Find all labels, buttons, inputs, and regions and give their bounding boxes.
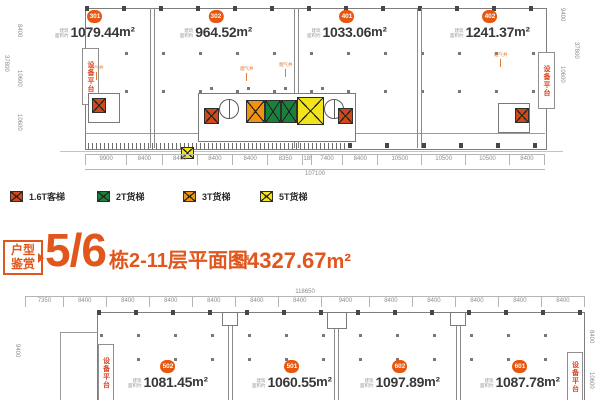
unit-area-value: 1079.44 [71,25,120,39]
unit-label: 301 建筑面积约 1079.44m² [55,10,135,39]
legend-label: 3T货梯 [202,190,231,203]
elevator-2t-freight-icon [281,100,297,123]
elevator-2t-legend-icon [97,191,110,202]
equipment-platform-left: 设备平台 [98,344,114,400]
unit-label: 602 建筑面积约 1097.89m² [360,360,440,389]
unit-number-badge: 602 [393,360,408,373]
unit-area-value: 1033.06 [323,25,372,39]
smoke-shaft-callout: 烟气井 [494,53,508,67]
dimension-left-bottom: 10600 [16,114,22,131]
smoke-shaft-callout: 烟气井 [240,67,254,81]
dimension-segment: 9400 [321,296,369,307]
unit-number-badge: 301 [88,10,103,23]
dimension-left-top: 9400 [14,344,20,357]
smoke-shaft-label: 烟气井 [240,67,254,72]
area-prefix: 建筑面积约 [450,28,464,38]
dimension-segment: 8350 [267,154,302,165]
bottom-plan-shaft [222,312,238,326]
dimension-right-mid: 10600 [559,66,565,83]
stairwell-left-icon [219,99,239,119]
area-prefix: 建筑面积约 [180,28,194,38]
top-plan-unit-divider-3 [417,8,422,148]
dimension-right-top: 9400 [559,8,565,21]
dimension-segment: 8400 [412,296,455,307]
top-plan-column-grid-1 [88,52,542,55]
smoke-shaft-callout: 烟气井 [90,66,104,80]
dimension-total: 118650 [25,288,585,295]
building-number: 5/6 [45,227,106,273]
unit-number-badge: 501 [285,360,300,373]
smoke-shaft-label: 烟气井 [90,66,104,71]
elevator-5t-freight-icon [297,97,324,125]
dimension-segment: 8400 [509,154,545,165]
elevator-3t-freight-icon [246,100,265,123]
dimension-segment: 8400 [232,154,267,165]
dimension-segment: 8400 [498,296,541,307]
equipment-platform-label: 设备平台 [543,65,550,97]
elevator-1.6t-passenger-icon [515,108,529,123]
dimension-segment: 10500 [421,154,465,165]
equipment-platform-right: 设备平台 [567,352,583,400]
bottom-plan-left-wing [60,332,98,400]
dimension-segment: 8400 [63,296,106,307]
unit-label: 402 建筑面积约 1241.37m² [450,10,530,39]
elevator-1.6t-passenger-icon [204,108,219,124]
dimension-segment: 8400 [192,296,235,307]
legend-label: 5T货梯 [279,190,308,203]
legend-label: 2T货梯 [116,190,145,203]
bottom-plan-shaft [450,312,466,326]
unit-area-unit: m² [119,25,135,38]
dimension-segment: 8400 [369,296,412,307]
area-prefix: 建筑面积约 [480,378,494,388]
unit-area-unit: m² [371,25,387,38]
dimension-segment: 7350 [25,296,63,307]
bottom-plan-column-grid-1 [100,334,580,337]
tag-line-1: 户型 [11,244,35,258]
unit-area-value: 1060.55 [268,375,317,389]
elevator-5t-legend-icon [260,191,273,202]
area-prefix: 建筑面积约 [360,378,374,388]
core-machine-row [210,87,340,90]
dimension-right-outer: 37800 [573,42,579,59]
dimension-left-outer: 37800 [3,55,9,72]
unit-area-unit: m² [424,375,440,388]
dimension-segment: 8400 [455,296,498,307]
dimension-segment: 8400 [235,296,278,307]
elevator-3t-legend-icon [183,191,196,202]
elevator-2t-freight-icon [265,100,281,123]
legend-item-5t: 5T货梯 [260,190,308,203]
unit-area-value: 1097.89 [376,375,425,389]
dimension-segment: 10500 [377,154,421,165]
smoke-shaft-label: 烟气井 [494,53,508,58]
unit-area-value: 964.52 [195,25,236,39]
floor-plan-page: 设备平台 设备平台 烟气井 烟气井 烟气井 烟气井 301 建筑面积约 1079… [0,0,600,400]
unit-label: 501 建筑面积约 1060.55m² [252,360,332,389]
dimension-left-top: 8400 [16,24,22,37]
dimension-row: 7350840084008400840084008400940084008400… [25,296,585,307]
tag-line-2: 鉴赏 [11,258,35,272]
legend-item-1.6t: 1.6T客梯 [10,190,65,203]
dimension-segment: 9900 [85,154,126,165]
bottom-plan-shaft [327,312,347,329]
unit-area-unit: m² [192,375,208,388]
dimension-right-bottom: 10600 [588,372,594,389]
dimension-segment: 8400 [126,154,161,165]
top-plan-apron-line [60,151,563,152]
unit-area-unit: m² [316,375,332,388]
dimension-segment: 8400 [162,154,197,165]
top-plan-canopy-ticks [88,143,348,149]
total-floor-area: 4327.67m² [247,250,351,272]
dimension-segment: 8400 [278,296,321,307]
unit-number-badge: 402 [483,10,498,23]
equipment-platform-label: 设备平台 [103,357,110,389]
dimension-total: 107100 [85,169,545,177]
unit-label: 302 建筑面积约 964.52m² [180,10,252,39]
elevator-1.6t-passenger-icon [338,108,353,124]
unit-label: 401 建筑面积约 1033.06m² [307,10,387,39]
area-prefix: 建筑面积约 [55,28,69,38]
dimension-right-top: 8400 [588,330,594,343]
legend-item-2t: 2T货梯 [97,190,145,203]
dimension-segment: 8400 [541,296,585,307]
dimension-segment: 8400 [197,154,232,165]
unit-area-unit: m² [236,25,252,38]
plan-title: 栋2-11层平面图 [109,251,248,271]
smoke-shaft-label: 烟气井 [279,63,293,68]
smoke-shaft-callout: 烟气井 [279,63,293,77]
unit-area-value: 1087.78 [496,375,545,389]
unit-area-unit: m² [544,375,560,388]
unit-area-value: 1081.45 [144,375,193,389]
dimension-segment: 1850 [302,154,311,165]
equipment-platform-label: 设备平台 [572,361,579,393]
top-plan-unit-divider-1 [150,8,155,148]
elevator-1.6t-legend-icon [10,191,23,202]
dimension-row: 9900840084008400840083501850740084001050… [85,154,545,165]
dimension-segment: 8400 [106,296,149,307]
elevator-1.6t-passenger-icon [92,98,106,113]
unit-number-badge: 401 [340,10,355,23]
unit-number-badge: 601 [513,360,528,373]
unit-label: 502 建筑面积约 1081.45m² [128,360,208,389]
unit-label: 601 建筑面积约 1087.78m² [480,360,560,389]
unit-area-unit: m² [514,25,530,38]
dimension-segment: 8400 [149,296,192,307]
equipment-platform-right: 设备平台 [538,52,555,109]
unit-number-badge: 302 [208,10,223,23]
dimension-left-mid: 10600 [16,70,22,87]
area-prefix: 建筑面积约 [128,378,142,388]
area-prefix: 建筑面积约 [252,378,266,388]
legend-item-3t: 3T货梯 [183,190,231,203]
dimension-segment: 8400 [342,154,377,165]
legend-label: 1.6T客梯 [29,190,65,203]
dimension-segment: 7400 [311,154,342,165]
huxing-appreciation-tag: 户型 鉴赏 [3,240,43,275]
dimension-segment: 10500 [465,154,509,165]
top-plan-columns-bottom [348,143,545,148]
unit-area-value: 1241.37 [466,25,515,39]
area-prefix: 建筑面积约 [307,28,321,38]
unit-number-badge: 502 [161,360,176,373]
